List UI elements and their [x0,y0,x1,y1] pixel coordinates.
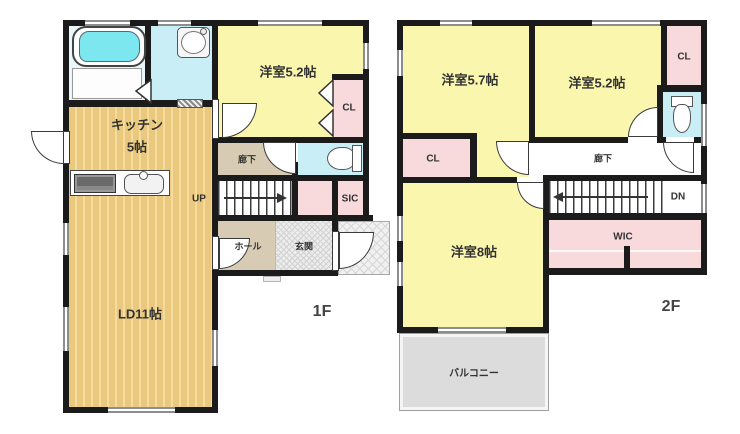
wall-segment [332,181,338,215]
label-bedroom57: 洋室5.7帖 [441,70,498,89]
window [592,20,660,26]
entrance-step [263,276,281,282]
label-stairs-up: UP [192,194,206,205]
label-kitchen-size: 5帖 [127,137,147,156]
label-living-dining: LD11帖 [118,304,162,323]
wall-segment [212,215,338,221]
wall-segment [543,213,707,220]
stairs-2f-arrowhead [553,192,563,202]
window [397,262,403,286]
label-corridor-1f: 廊下 [238,153,256,166]
door-bathroom-icon [135,79,152,104]
label-closet-1f: CL [342,103,355,114]
wall-segment [470,133,477,183]
bathtub-water [79,31,140,62]
window [258,20,322,26]
stairs-2f-arrow [562,196,648,198]
label-closet-right-2f: CL [677,52,690,63]
window [158,20,191,26]
wall-segment [63,20,69,413]
label-stairs-down: DN [671,192,685,203]
door-toilet-2f [663,142,694,173]
room-understairs-closet [298,181,332,215]
label-entrance: 玄関 [295,240,313,253]
label-floor-2f: 2F [662,298,681,316]
stove [74,174,116,193]
wall-segment [624,246,630,270]
toilet-1f-tank [352,145,362,172]
wall-segment [397,133,477,139]
window [212,330,218,366]
wall-segment [535,137,628,143]
label-kitchen: キッチン [111,115,163,134]
window [397,216,403,241]
wall-segment [292,181,298,215]
stairs-1f-arrow [224,197,278,199]
toilet-1f-bowl [327,147,355,170]
label-corridor-2f: 廊下 [594,152,612,165]
toilet-2f-bowl [673,104,691,133]
window [63,307,69,351]
wall-segment [212,175,369,181]
label-floor-1f: 1F [313,303,332,321]
door-leaf [63,131,70,164]
plan-shape [319,110,333,136]
label-closet-left-2f: CL [426,154,439,165]
bathroom-floor [72,68,142,99]
sliding-door-washroom [177,99,203,108]
label-sic: SIC [342,194,359,205]
wall-segment [657,85,707,92]
wall-segment [701,20,707,275]
window [701,184,707,213]
label-hall: ホール [234,240,261,253]
label-bedroom52-1f: 洋室5.2帖 [259,62,316,81]
sink-faucet [139,171,148,180]
label-bedroom52-2f: 洋室5.2帖 [568,73,625,92]
wall-segment [661,20,667,85]
door-leaf [212,99,219,139]
label-wic: WIC [613,232,632,243]
wall-segment [212,270,338,276]
window [701,104,707,146]
wall-segment [332,74,363,80]
door-kitchen-exterior [31,131,64,164]
entrance-hall-divider [275,221,276,270]
door-leaf [332,231,339,271]
label-balcony: バルコニー [449,365,499,380]
closet-folding-doors-icon [316,79,334,137]
plan-shape [136,80,151,103]
window [363,43,369,69]
window [397,50,403,76]
window [108,407,175,413]
window-balcony-door [438,327,506,333]
door-leaf [212,236,219,270]
plan-shape [319,80,333,106]
floor-plan-canvas: キッチン 5帖 LD11帖 洋室5.2帖 廊下 CL SIC ホール 玄関 UP… [0,0,740,434]
window [63,223,69,255]
label-bedroom8: 洋室8帖 [451,242,497,261]
washbasin-faucet [200,28,207,35]
wall-segment [543,175,707,181]
wall-segment [397,177,517,183]
wall-segment [529,20,535,143]
stairs-1f-arrowhead [277,193,287,203]
window [440,20,472,26]
